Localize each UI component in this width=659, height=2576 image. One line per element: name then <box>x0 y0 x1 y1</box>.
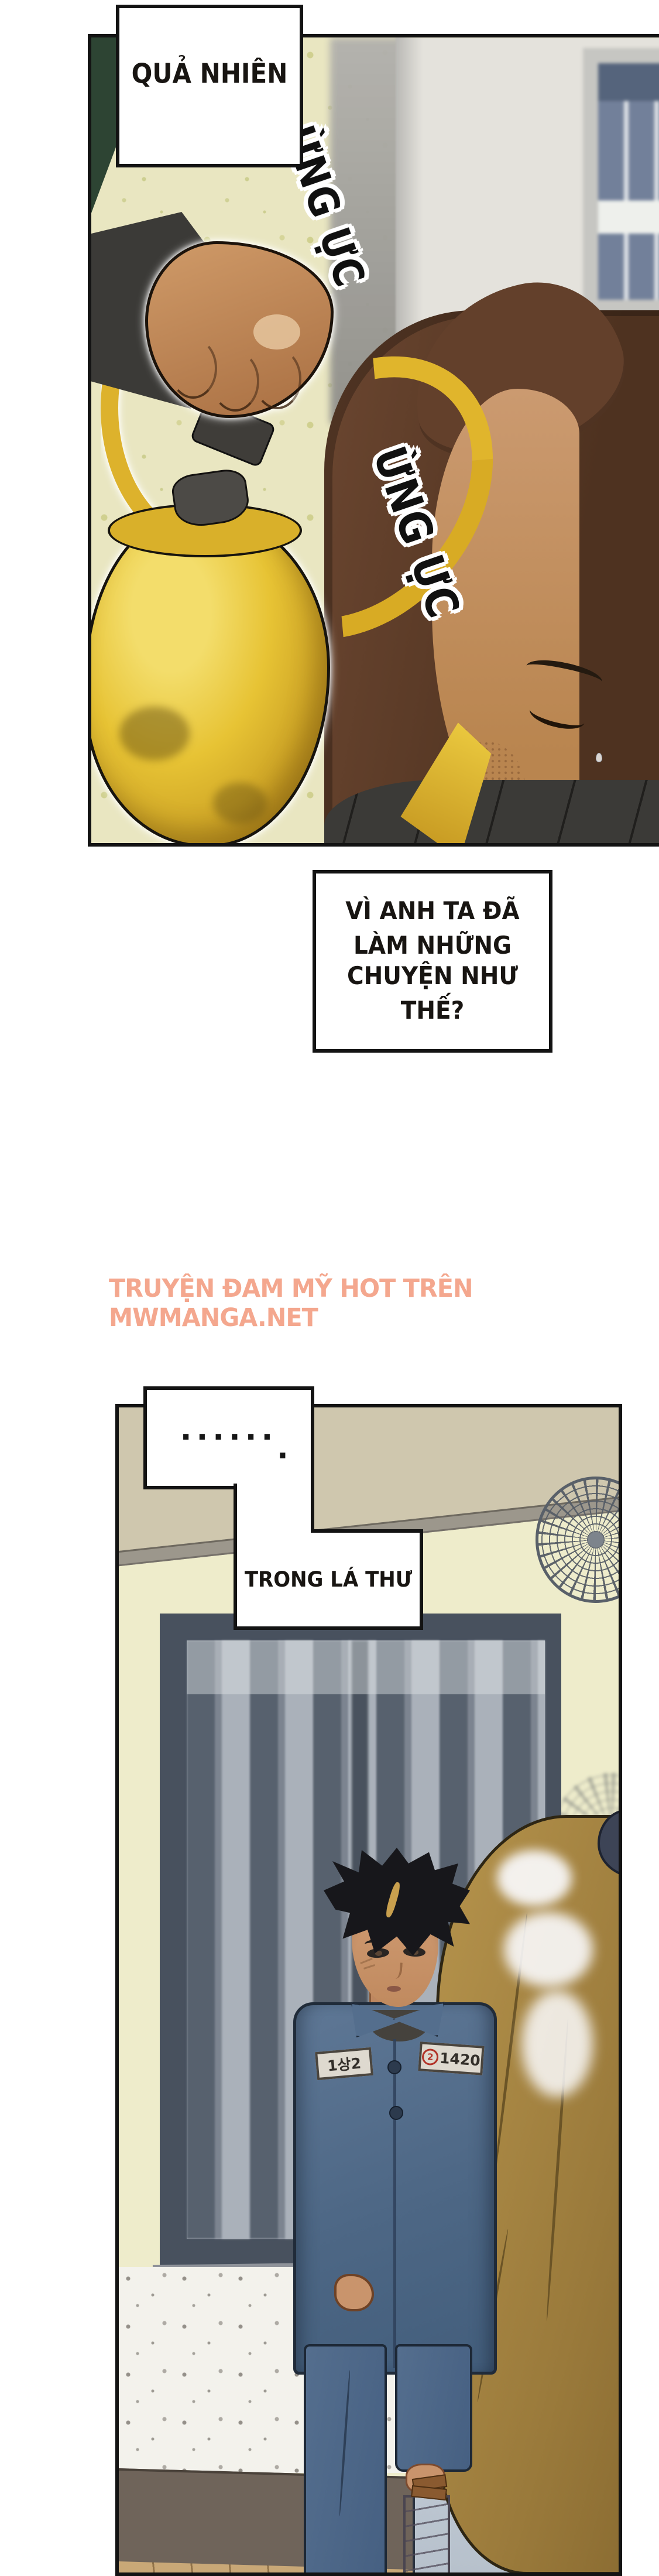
speech-box-connector <box>234 1484 314 1533</box>
prisoner-pants-right-leg <box>395 2344 472 2472</box>
ellipsis-tail-dot: . <box>277 1431 289 1466</box>
fist-finger <box>169 338 217 399</box>
kettle-spot <box>119 707 190 761</box>
steam-puff <box>521 1991 593 2097</box>
badge-left-text: 1상2 <box>327 2052 362 2076</box>
caption-box-middle: VÌ ANH TA ĐÃ LÀM NHỮNG CHUYỆN NHƯ THẾ? <box>313 870 552 1053</box>
jacket-button <box>389 2106 403 2120</box>
badge-right-text: 1420 <box>439 2049 480 2069</box>
fist-finger <box>253 348 301 409</box>
building-window <box>583 48 659 315</box>
caption-letter-text: TRONG LÁ THƯ <box>245 1567 412 1592</box>
fist-finger <box>211 351 259 412</box>
kettle-body <box>88 511 330 847</box>
ellipsis-text: ...... <box>180 1412 278 1447</box>
sweat-drop-2 <box>596 753 602 762</box>
hair-blond-streak <box>385 1881 402 1918</box>
prisoner-scar <box>363 1964 375 1969</box>
caption-middle-line2: CHUYỆN NHƯ THẾ? <box>316 959 549 1029</box>
steam-puff <box>497 1850 572 1906</box>
jacket-button <box>387 2060 401 2074</box>
caption-middle-line1: VÌ ANH TA ĐÃ LÀM NHỮNG <box>316 894 549 964</box>
badge-right-circled-number: 2 <box>421 2049 439 2066</box>
manga-page: 3 <box>0 0 659 2576</box>
prisoner-jacket: 1상2 2 1420 <box>293 2002 497 2375</box>
caption-box-top: QUẢ NHIÊN <box>116 5 303 167</box>
caption-top-text: QUẢ NHIÊN <box>132 57 288 89</box>
jacket-placket <box>393 2039 396 2368</box>
window-panes <box>598 63 659 300</box>
pants-crease <box>338 2370 351 2516</box>
prisoner-scar <box>360 1958 373 1964</box>
badge-right: 2 1420 <box>418 2041 484 2075</box>
caption-box-letter: TRONG LÁ THƯ <box>234 1529 423 1630</box>
prisoner-nose <box>391 1962 403 1979</box>
watermark-text: TRUYỆN ĐAM MỸ HOT TRÊN MWMANGA.NET <box>109 1274 558 1332</box>
leg-bandage <box>403 2495 450 2575</box>
fist-highlight <box>253 314 300 350</box>
badge-left: 1상2 <box>315 2047 373 2080</box>
prisoner-mouth <box>387 1986 401 1992</box>
steam-puff <box>504 1912 593 1987</box>
speech-box-ellipsis: ...... . <box>143 1386 314 1489</box>
man-shirt <box>324 780 659 845</box>
prisoner-pants-left-leg <box>304 2344 387 2574</box>
window-top-light <box>187 1640 545 1694</box>
kettle-spot-2 <box>213 783 267 824</box>
